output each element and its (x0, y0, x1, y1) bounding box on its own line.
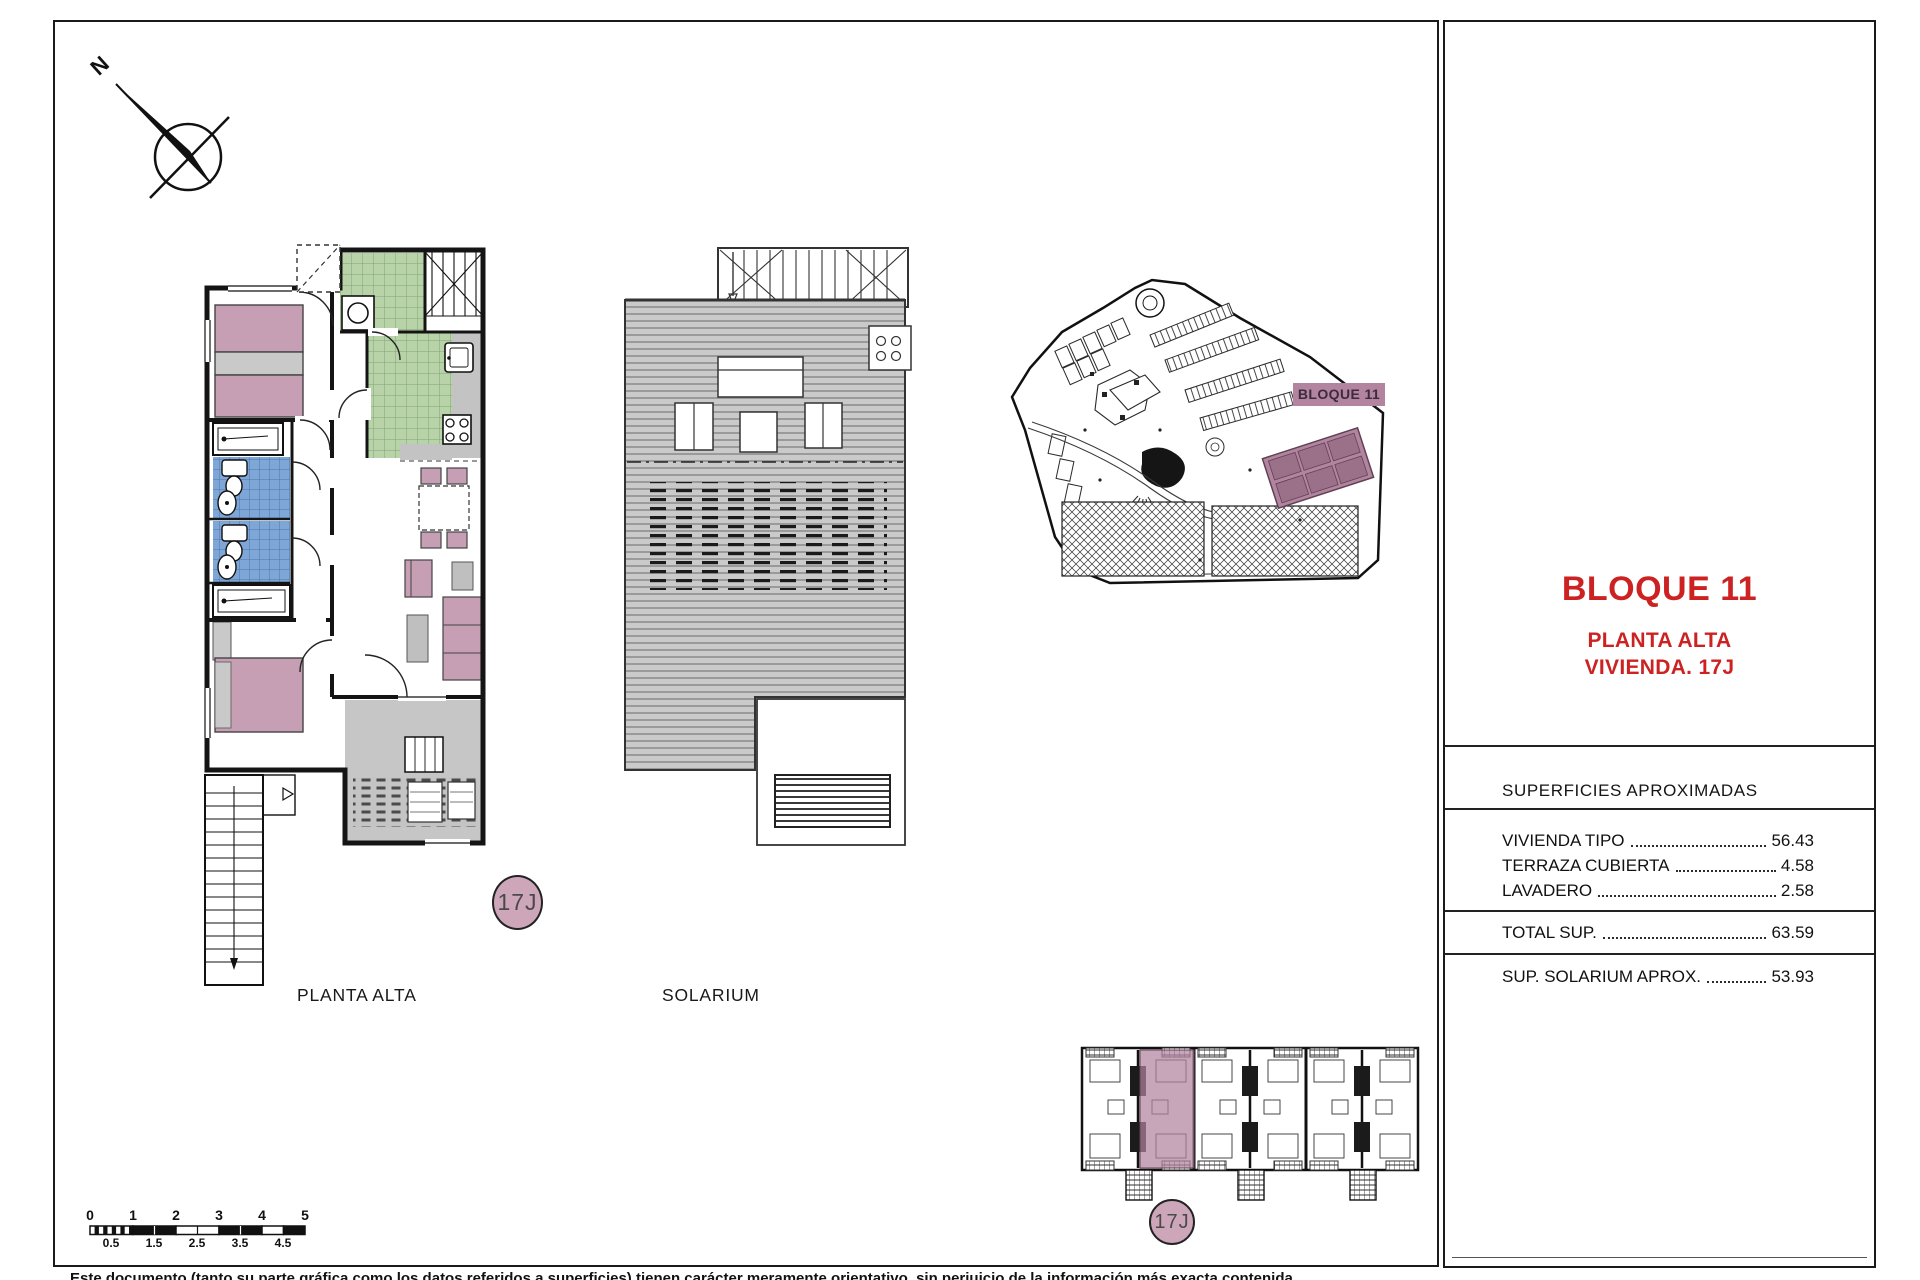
surface-label: LAVADERO (1502, 881, 1592, 901)
surfaces-table-header: SUPERFICIES APROXIMADAS (1502, 781, 1758, 801)
surface-value: 63.59 (1771, 923, 1814, 943)
surface-label: TERRAZA CUBIERTA (1502, 856, 1670, 876)
surface-value: 2.58 (1781, 881, 1814, 901)
panel-subtitle-floor: PLANTA ALTA (1443, 629, 1876, 653)
scale-subtick: 4.5 (275, 1236, 292, 1250)
scale-tick: 0 (86, 1207, 94, 1223)
unit-badge: 17J (492, 875, 543, 930)
leader-dots (1598, 895, 1776, 897)
unit-badge-bottom: 17J (1149, 1199, 1195, 1245)
surface-value: 4.58 (1781, 856, 1814, 876)
scale-tick: 5 (301, 1207, 309, 1223)
leader-dots (1707, 981, 1766, 983)
disclaimer-text: Este documento (tanto su parte gráfica c… (70, 1270, 1293, 1280)
page-title: BLOQUE 11 (1443, 570, 1876, 609)
surface-value: 56.43 (1771, 831, 1814, 851)
scale-subtick: 1.5 (146, 1236, 163, 1250)
scale-tick: 4 (258, 1207, 266, 1223)
panel-divider (1445, 910, 1874, 912)
surface-label: SUP. SOLARIUM APROX. (1502, 967, 1701, 987)
scale-subtick: 2.5 (189, 1236, 206, 1250)
scale-subtick: 3.5 (232, 1236, 249, 1250)
scale-tick: 1 (129, 1207, 137, 1223)
leader-dots (1603, 937, 1767, 939)
surface-row: LAVADERO 2.58 (1502, 876, 1814, 901)
total-row: TOTAL SUP. 63.59 (1502, 918, 1814, 943)
panel-divider (1445, 953, 1874, 955)
leader-dots (1631, 845, 1767, 847)
panel-bottom-line (1452, 1257, 1867, 1258)
surface-value: 53.93 (1771, 967, 1814, 987)
scale-subtick: 0.5 (103, 1236, 120, 1250)
solarium-row: SUP. SOLARIUM APROX. 53.93 (1502, 962, 1814, 987)
scale-tick: 2 (172, 1207, 180, 1223)
solarium-label: SOLARIUM (662, 985, 760, 1006)
scale-tick: 3 (215, 1207, 223, 1223)
panel-subtitle-unit: VIVIENDA. 17J (1443, 656, 1876, 680)
leader-dots (1676, 870, 1776, 872)
panel-divider (1445, 808, 1874, 810)
drawing-area-frame (53, 20, 1439, 1267)
surface-label: TOTAL SUP. (1502, 923, 1597, 943)
site-block-label: BLOQUE 11 (1293, 383, 1385, 406)
surface-row: TERRAZA CUBIERTA 4.58 (1502, 851, 1814, 876)
panel-divider (1445, 745, 1874, 747)
floor-plan-label: PLANTA ALTA (297, 985, 417, 1006)
surface-row: VIVIENDA TIPO 56.43 (1502, 826, 1814, 851)
surface-label: VIVIENDA TIPO (1502, 831, 1625, 851)
